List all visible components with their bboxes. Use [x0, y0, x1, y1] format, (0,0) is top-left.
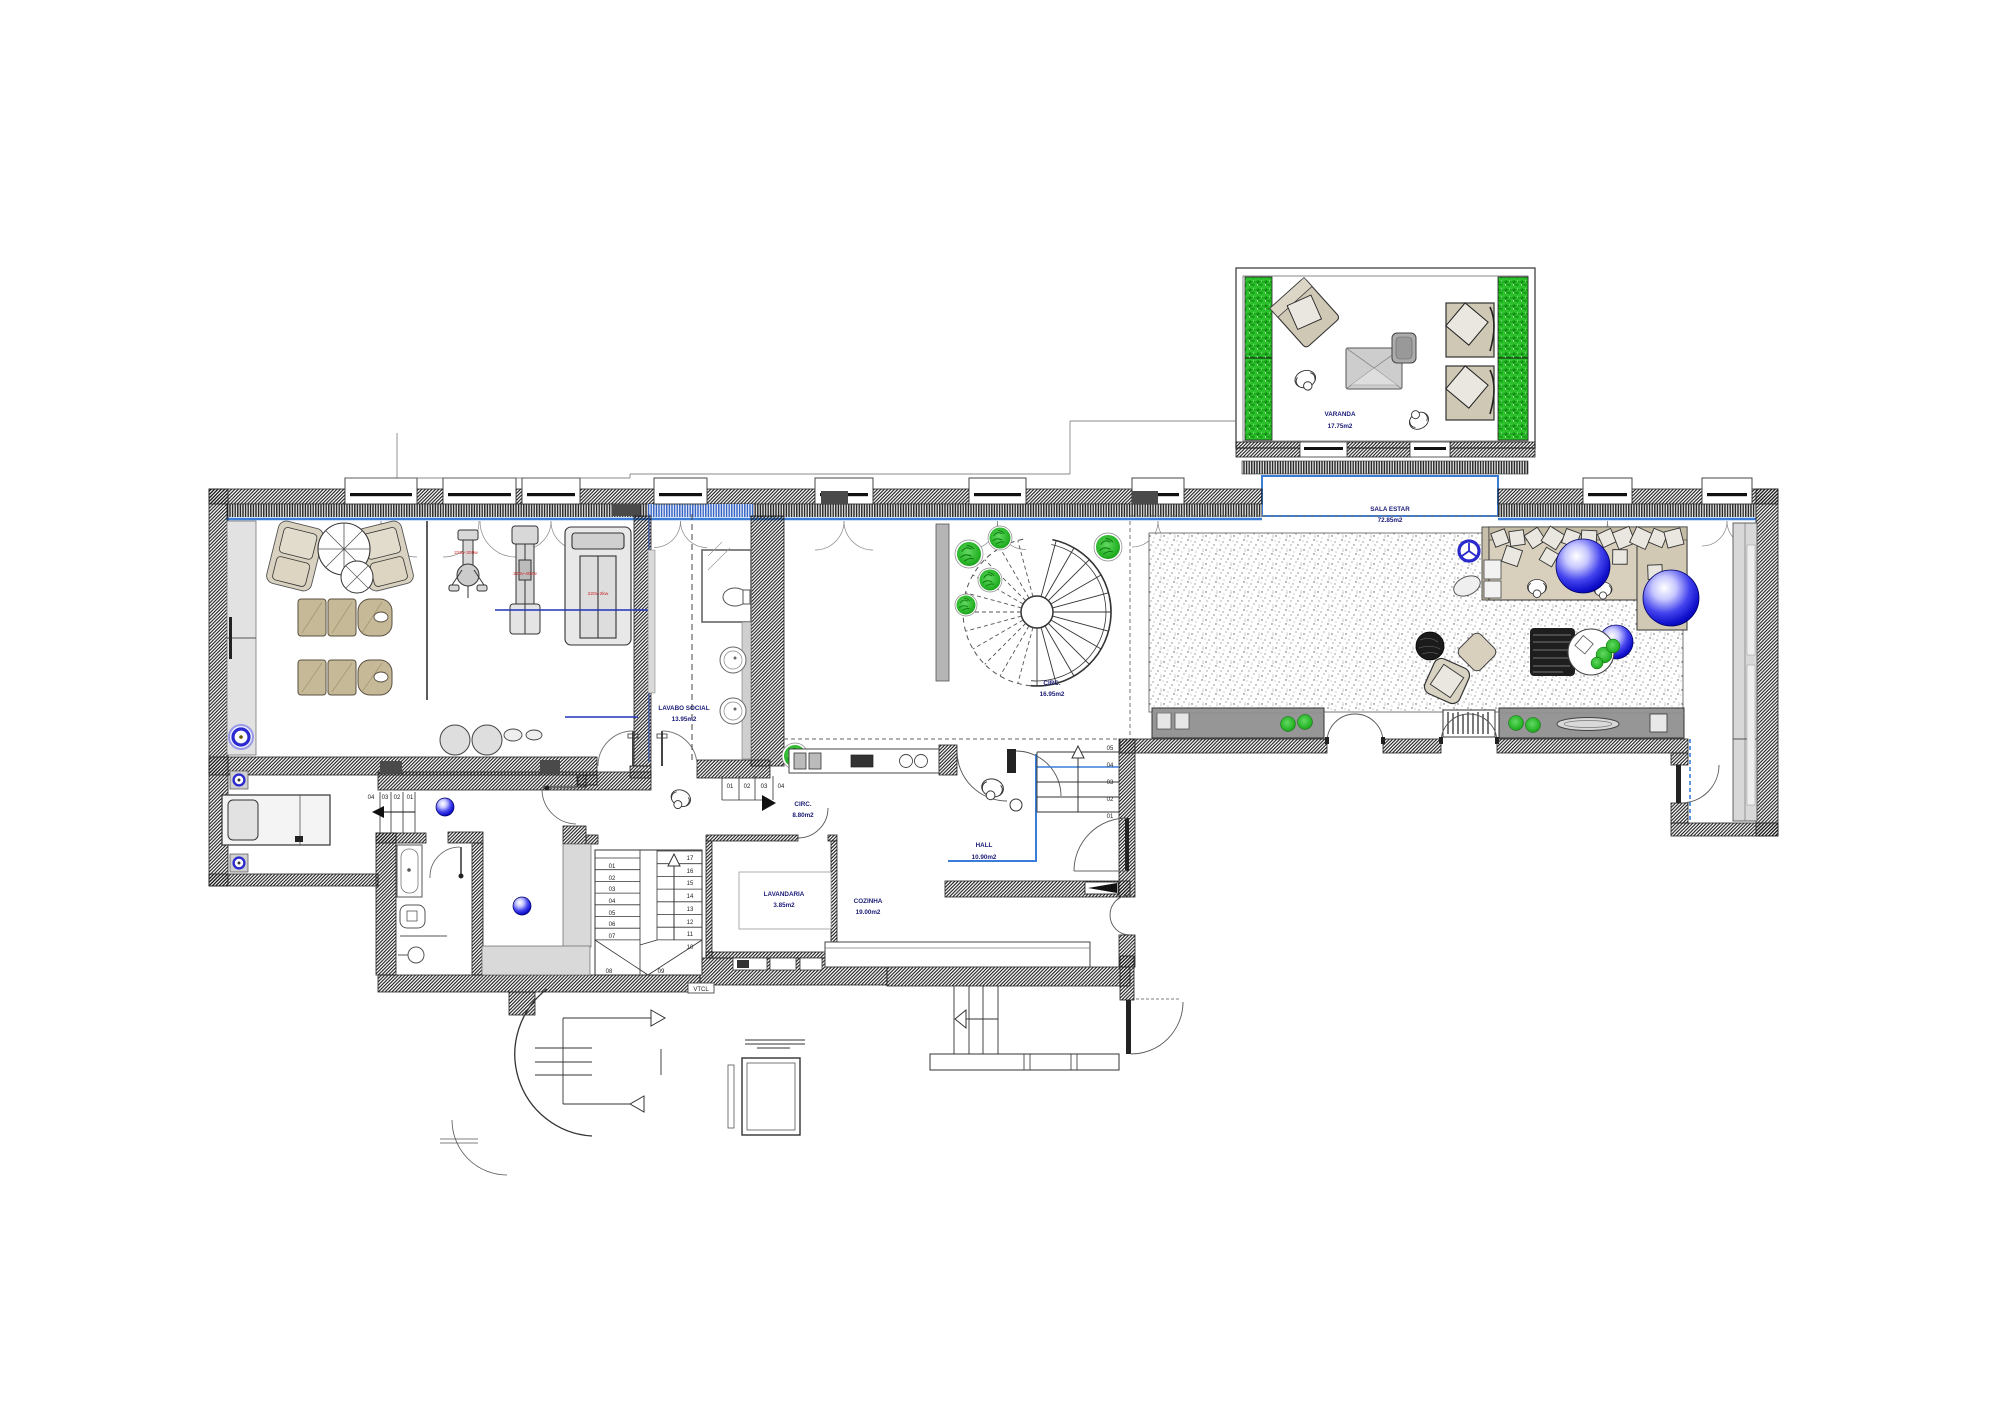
- svg-text:72.85m2: 72.85m2: [1378, 517, 1403, 524]
- svg-text:8.80m2: 8.80m2: [792, 812, 814, 819]
- svg-text:05: 05: [1107, 746, 1114, 752]
- svg-text:220v-300w: 220v-300w: [454, 550, 478, 556]
- svg-text:17.75m2: 17.75m2: [1328, 423, 1353, 430]
- svg-text:12: 12: [687, 920, 694, 926]
- svg-text:19.00m2: 19.00m2: [856, 909, 881, 916]
- svg-text:220v-2kw: 220v-2kw: [588, 591, 609, 597]
- svg-text:10.90m2: 10.90m2: [972, 854, 997, 861]
- svg-text:04: 04: [1107, 763, 1114, 769]
- svg-text:CIRC.: CIRC.: [794, 801, 811, 808]
- svg-text:10: 10: [687, 945, 694, 951]
- svg-text:03: 03: [382, 795, 389, 801]
- svg-text:15: 15: [687, 881, 694, 887]
- svg-text:02: 02: [394, 795, 401, 801]
- svg-text:COZINHA: COZINHA: [854, 898, 883, 905]
- svg-text:13.95m2: 13.95m2: [672, 716, 697, 723]
- svg-text:VTCL: VTCL: [693, 987, 709, 993]
- svg-text:04: 04: [778, 784, 785, 790]
- svg-text:03: 03: [609, 887, 616, 893]
- svg-text:LAVABO SOCIAL: LAVABO SOCIAL: [658, 705, 709, 712]
- svg-text:01: 01: [727, 784, 734, 790]
- svg-text:01: 01: [407, 795, 414, 801]
- svg-text:HALL: HALL: [976, 842, 993, 849]
- svg-text:CIRC.: CIRC.: [1043, 680, 1060, 687]
- svg-text:02: 02: [744, 784, 751, 790]
- svg-text:220v-400w: 220v-400w: [513, 571, 537, 577]
- svg-text:05: 05: [609, 911, 616, 917]
- svg-text:13: 13: [687, 907, 694, 913]
- svg-text:01: 01: [609, 864, 616, 870]
- svg-text:3.85m2: 3.85m2: [773, 902, 795, 909]
- svg-text:09: 09: [658, 969, 665, 975]
- svg-text:03: 03: [761, 784, 768, 790]
- svg-text:VARANDA: VARANDA: [1324, 411, 1355, 418]
- svg-text:02: 02: [609, 876, 616, 882]
- svg-text:04: 04: [609, 899, 616, 905]
- svg-text:11: 11: [687, 932, 694, 938]
- svg-text:07: 07: [609, 934, 616, 940]
- svg-text:03: 03: [1107, 780, 1114, 786]
- svg-text:02: 02: [1107, 797, 1114, 803]
- svg-text:06: 06: [609, 922, 616, 928]
- svg-text:LAVANDARIA: LAVANDARIA: [764, 891, 805, 898]
- svg-text:08: 08: [606, 969, 613, 975]
- svg-text:17: 17: [687, 856, 694, 862]
- svg-text:14: 14: [687, 894, 694, 900]
- svg-text:04: 04: [368, 795, 375, 801]
- svg-text:SALA ESTAR: SALA ESTAR: [1370, 506, 1410, 513]
- svg-text:01: 01: [1107, 814, 1114, 820]
- svg-text:16: 16: [687, 869, 694, 875]
- svg-text:16.95m2: 16.95m2: [1040, 691, 1065, 698]
